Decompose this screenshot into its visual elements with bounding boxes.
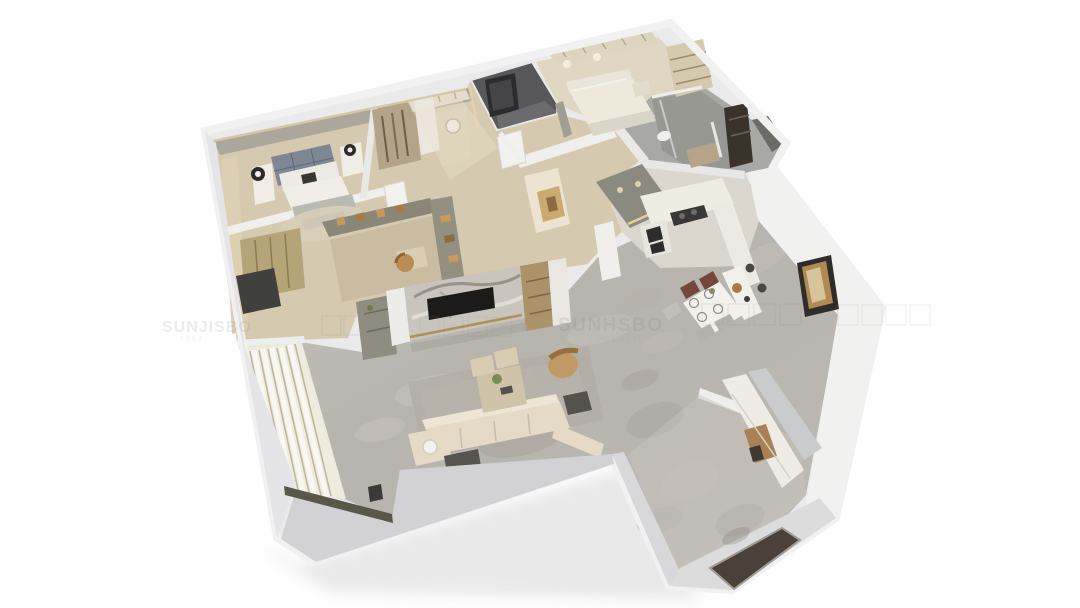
svg-text:SINCE 1999: SINCE 1999: [588, 336, 644, 343]
svg-text:1999: 1999: [180, 336, 204, 343]
svg-text:SUNHSBO: SUNHSBO: [558, 315, 664, 336]
svg-text:SUNJISBO: SUNJISBO: [162, 319, 252, 336]
